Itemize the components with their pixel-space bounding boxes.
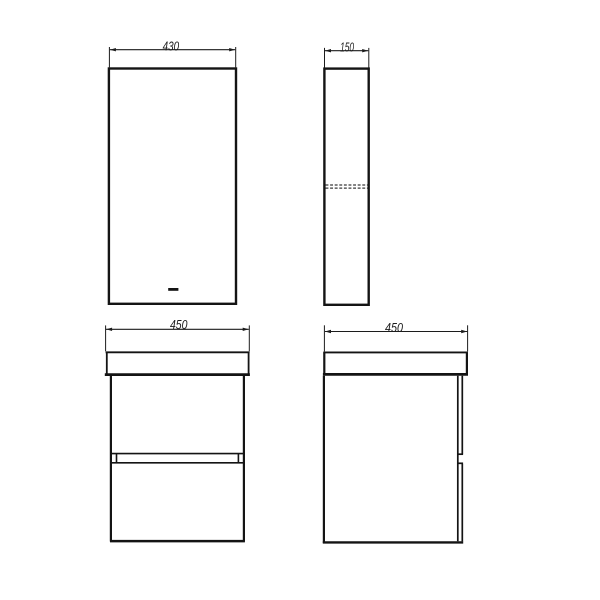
- svg-text:150: 150: [340, 40, 354, 54]
- svg-text:430: 430: [163, 40, 180, 54]
- svg-text:450: 450: [170, 318, 188, 332]
- svg-text:450: 450: [385, 321, 403, 335]
